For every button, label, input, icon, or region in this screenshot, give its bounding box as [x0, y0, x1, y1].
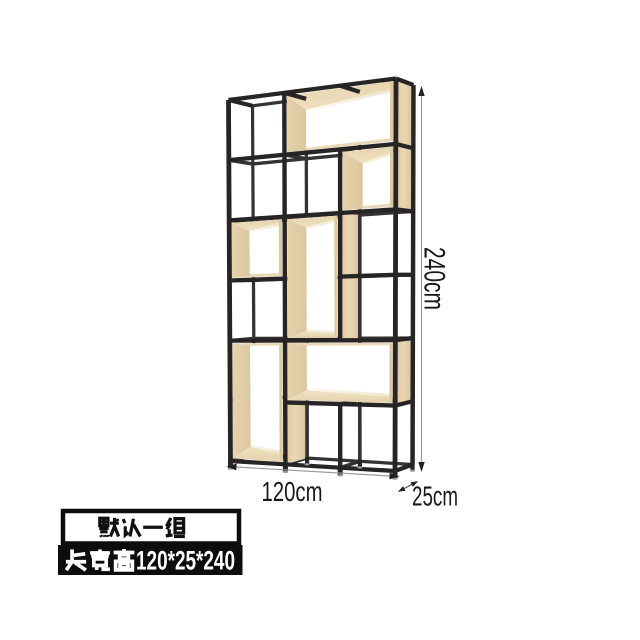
svg-text:120cm: 120cm	[262, 476, 323, 507]
svg-text:25cm: 25cm	[412, 481, 458, 512]
svg-text:120*25*240: 120*25*240	[136, 546, 235, 576]
svg-text:240cm: 240cm	[418, 247, 451, 310]
